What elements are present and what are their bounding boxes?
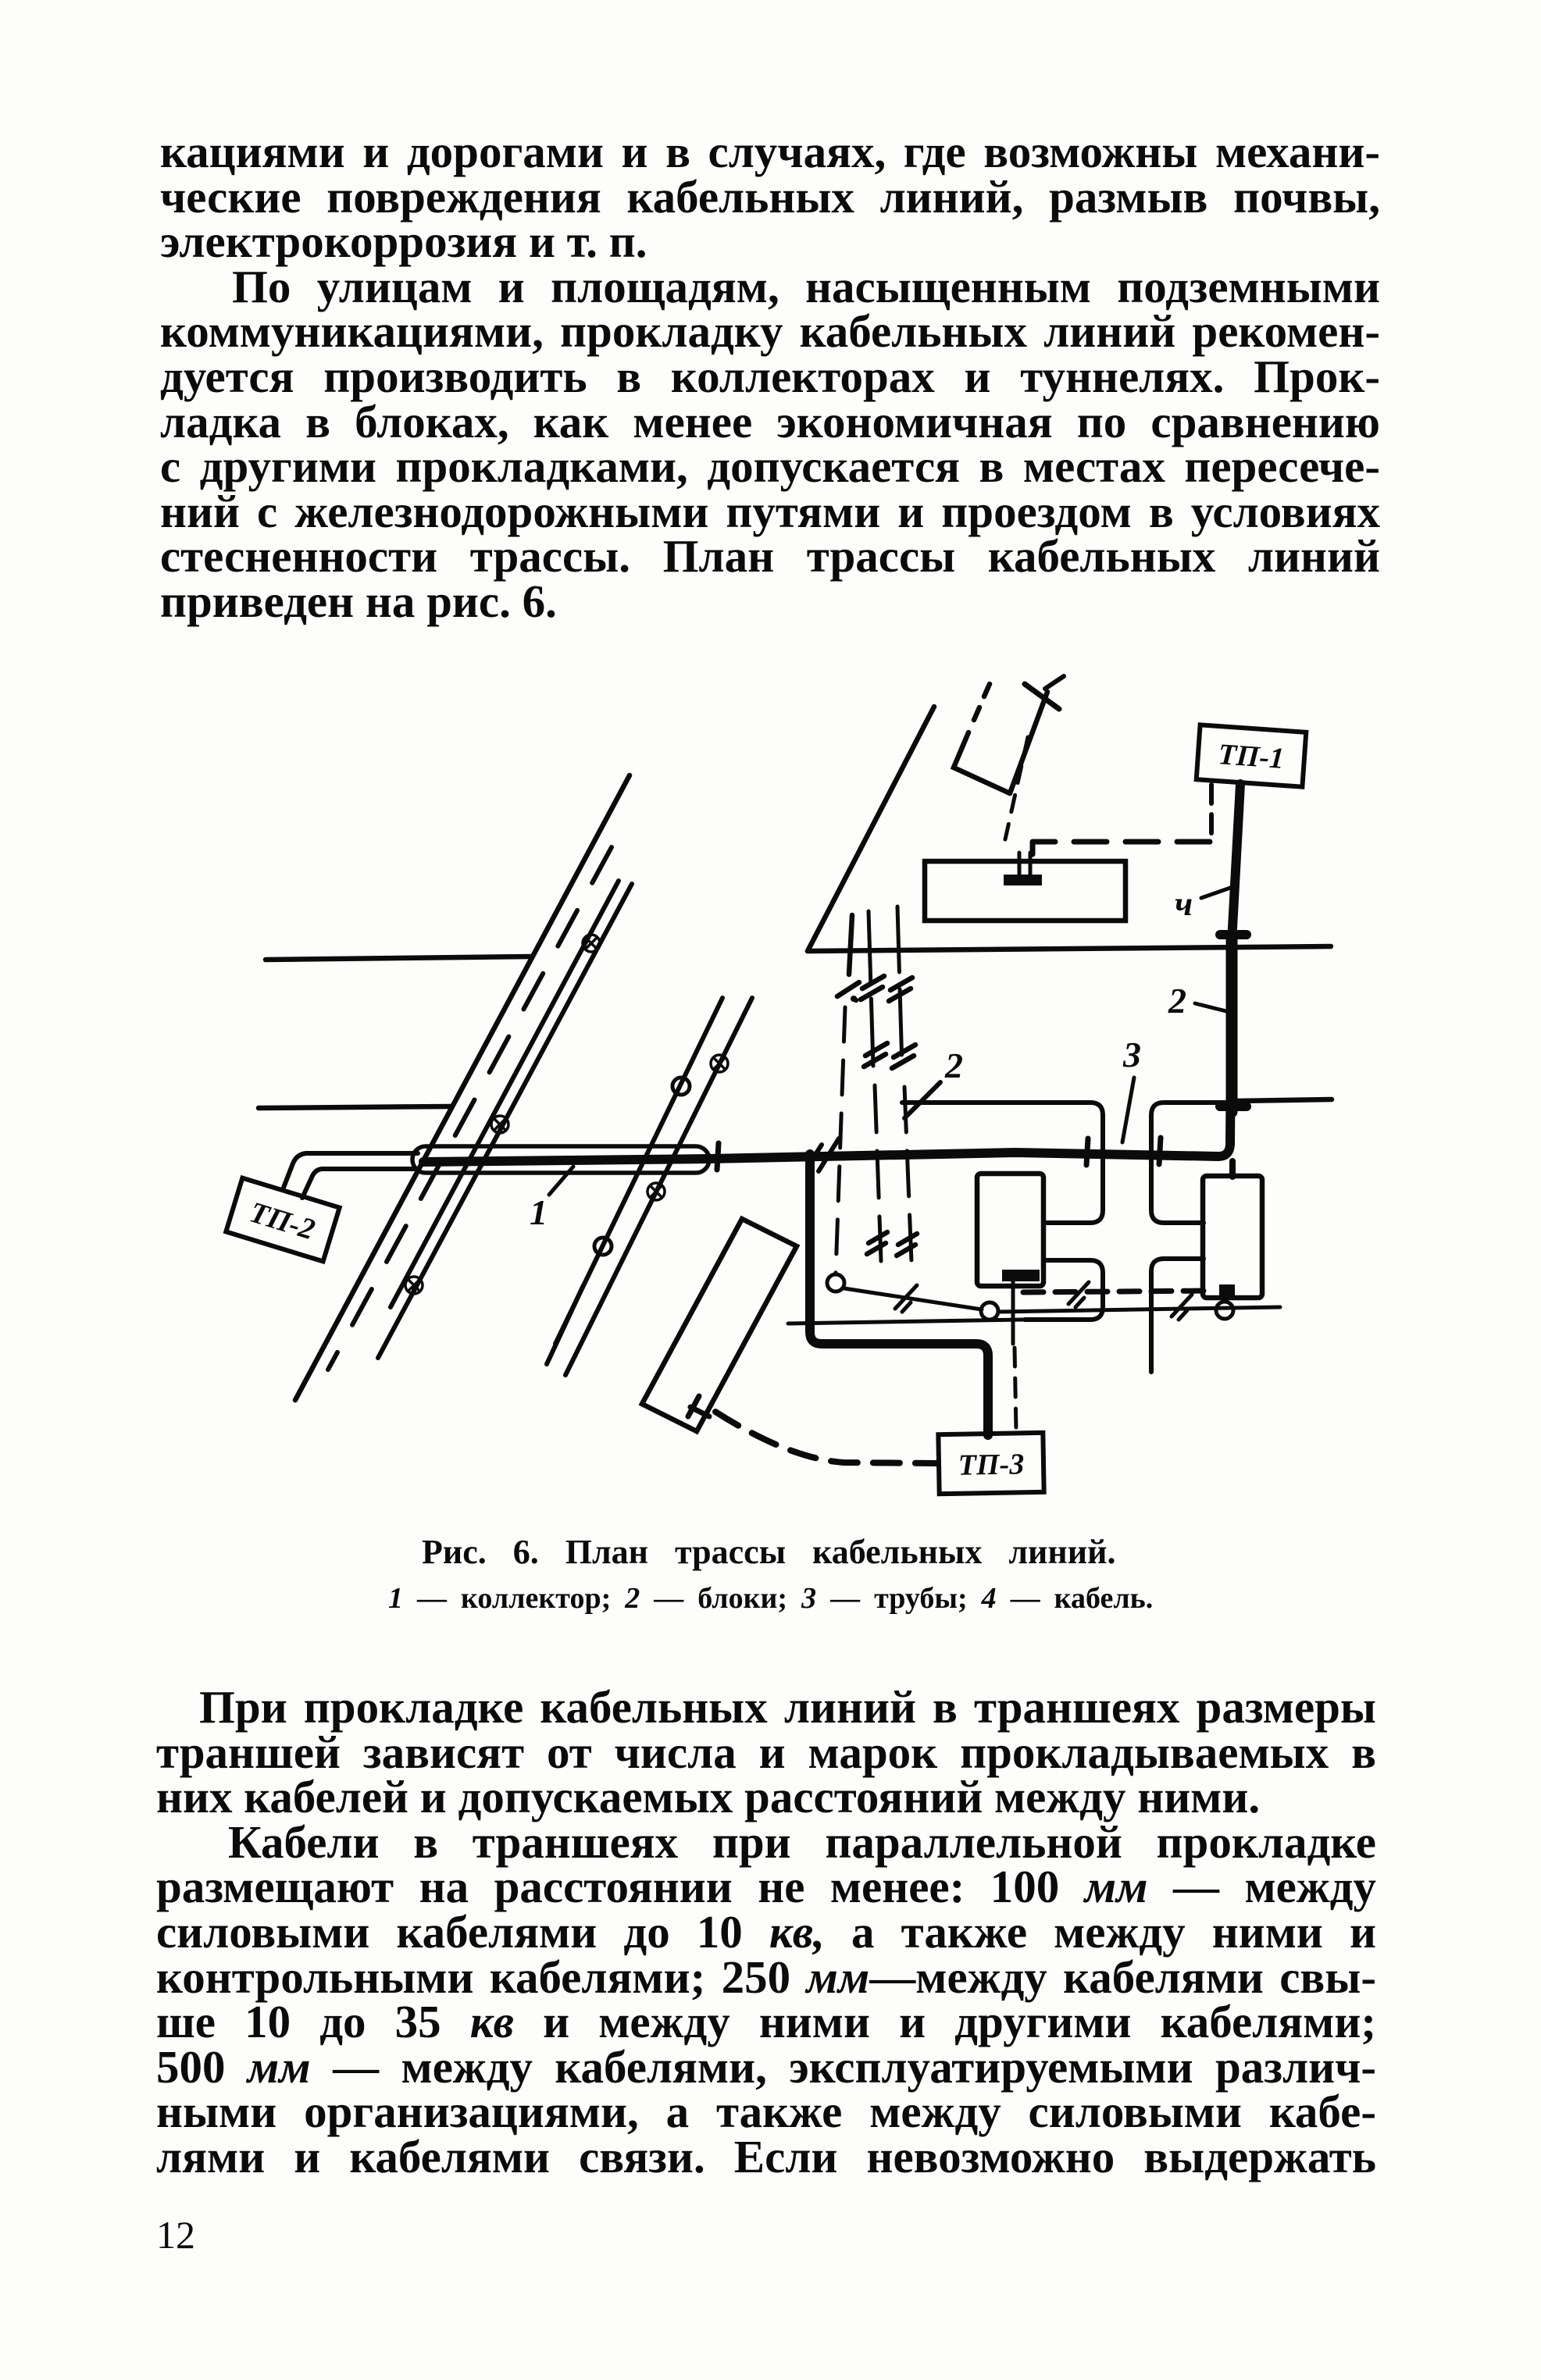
svg-text:ТП-3: ТП-3 xyxy=(958,1448,1024,1481)
svg-text:ч: ч xyxy=(1175,885,1193,923)
svg-text:ТП-1: ТП-1 xyxy=(1217,738,1285,775)
svg-text:3: 3 xyxy=(1122,1035,1141,1074)
svg-text:2: 2 xyxy=(944,1046,963,1085)
svg-text:2: 2 xyxy=(1168,981,1186,1021)
svg-text:1: 1 xyxy=(530,1192,548,1232)
